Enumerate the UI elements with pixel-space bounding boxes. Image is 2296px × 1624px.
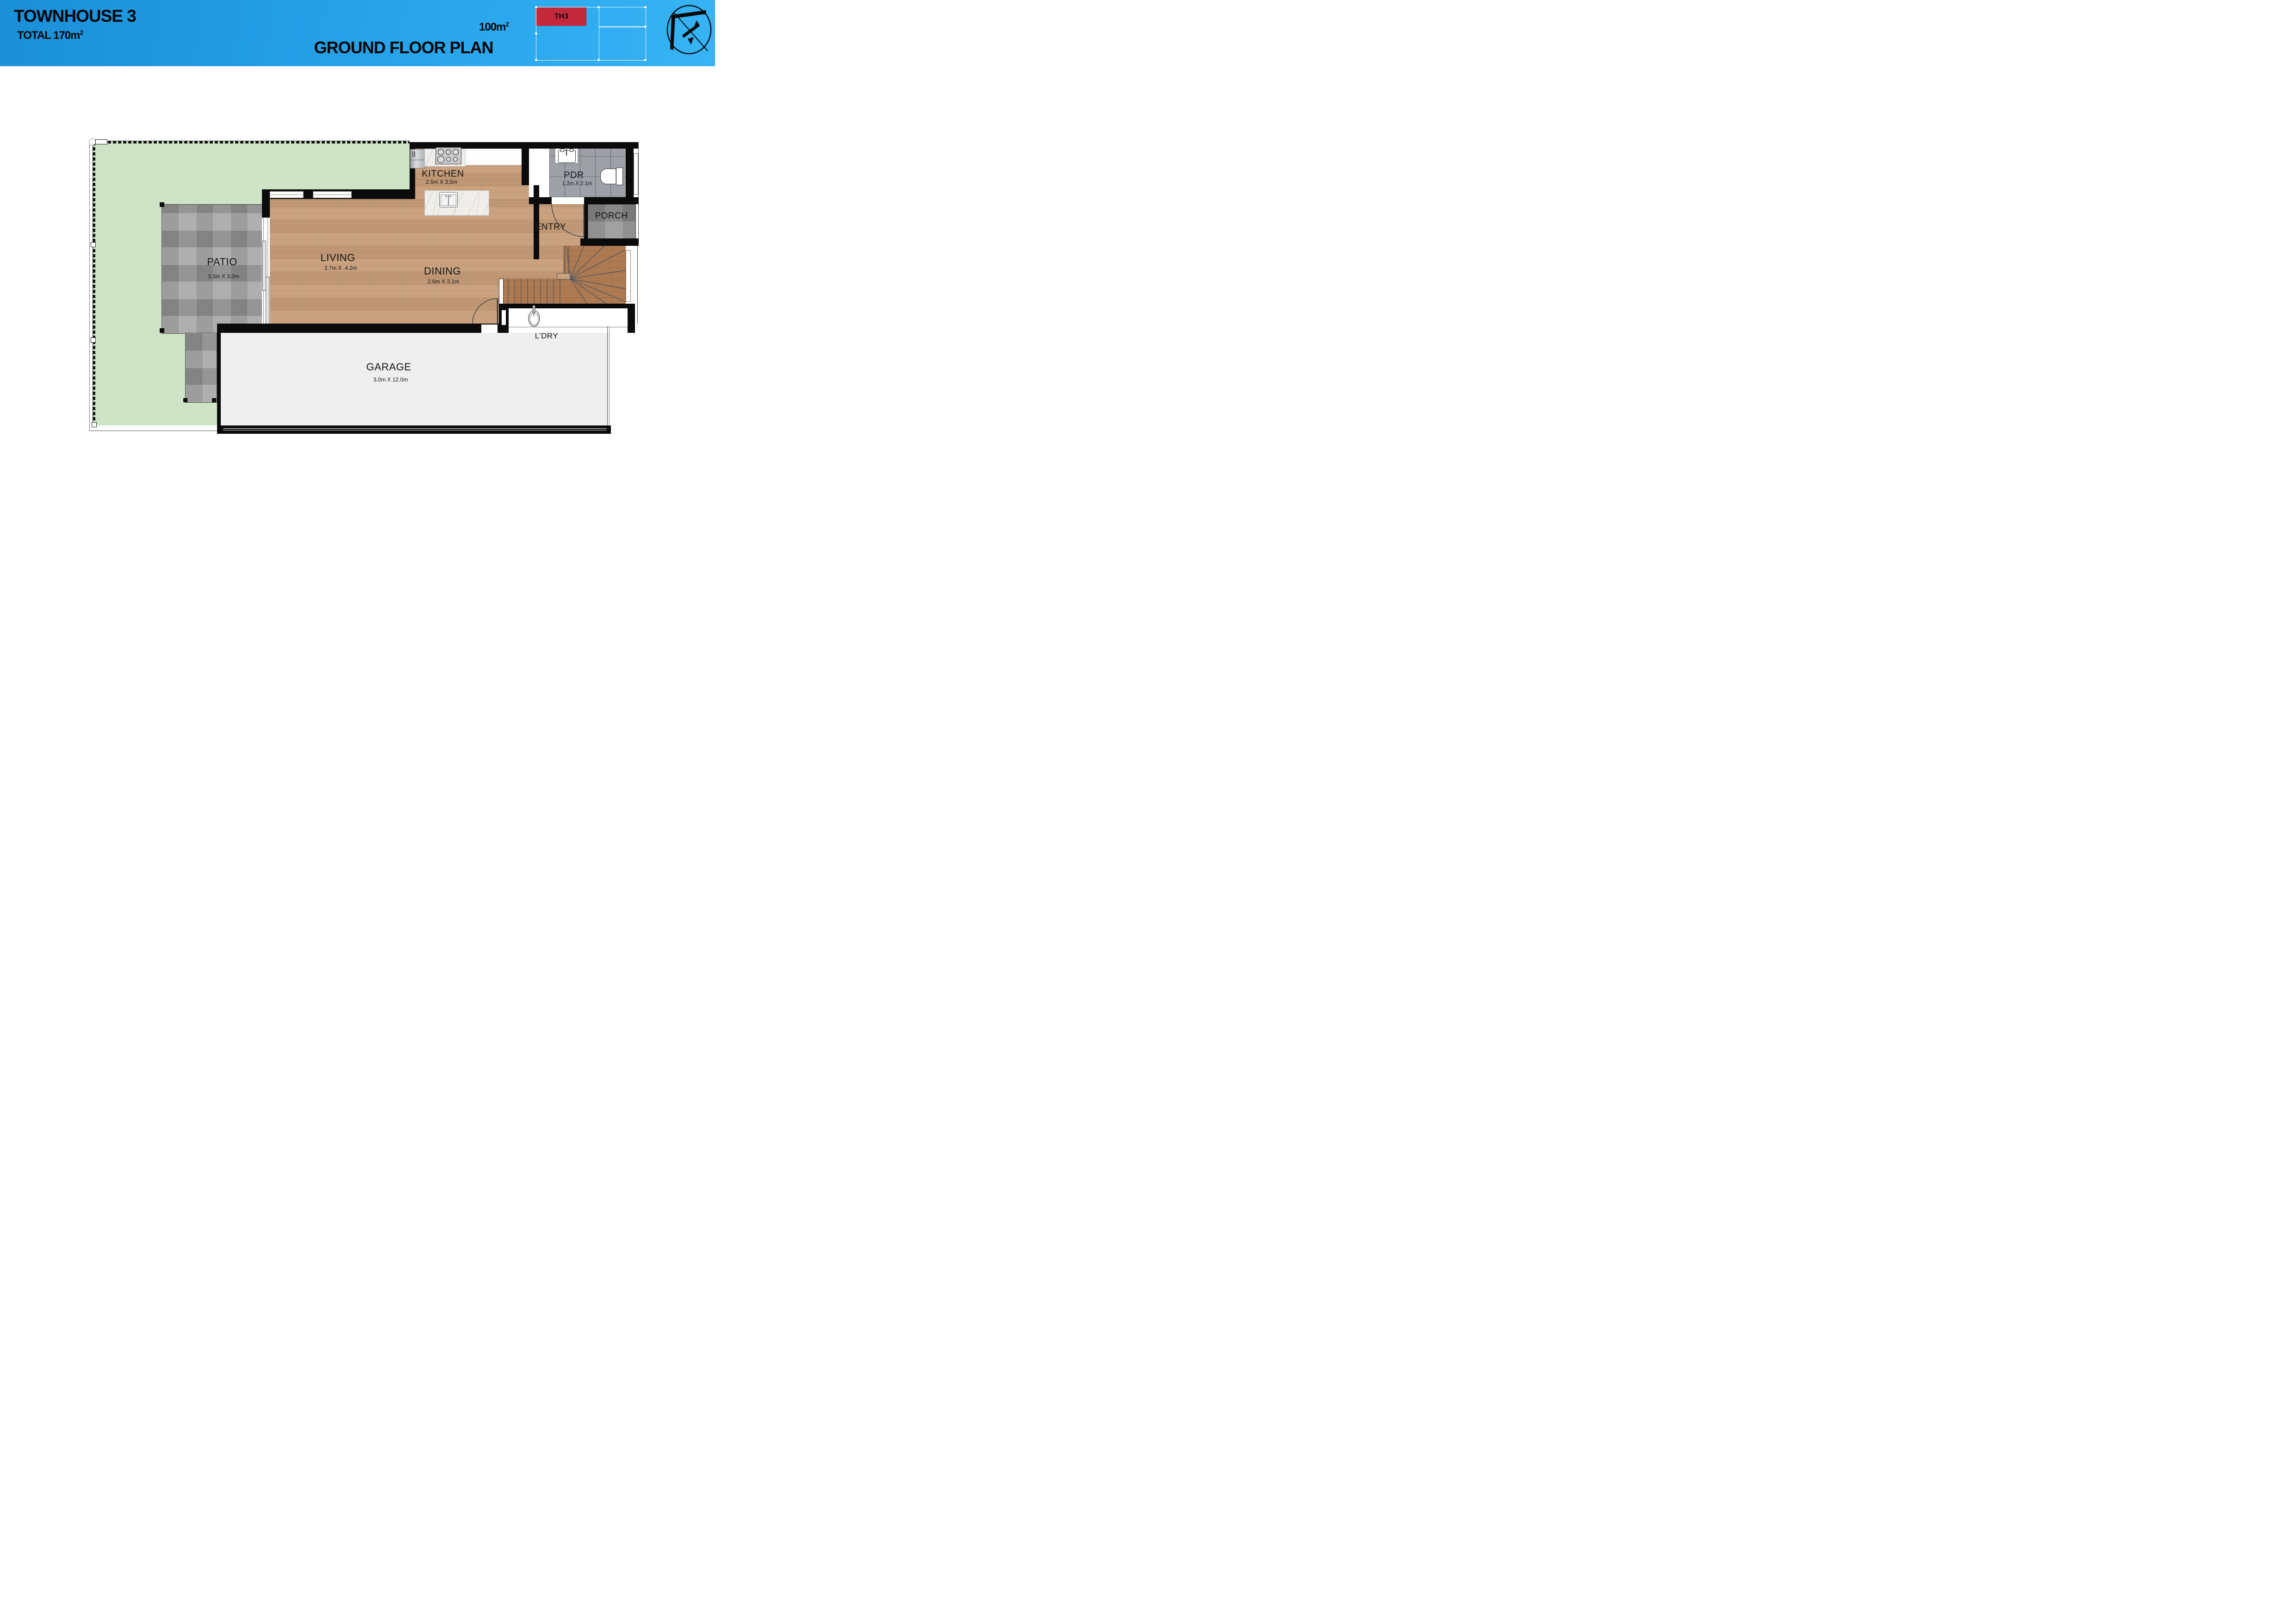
floor-area-sup: 2	[505, 20, 509, 28]
room-label-ldry: L’DRY	[535, 331, 558, 341]
island-bench	[424, 190, 489, 216]
porch-floor	[588, 204, 636, 239]
window-pdr-east	[634, 153, 638, 195]
garage-east-line	[609, 326, 610, 425]
grid-handle	[644, 25, 647, 28]
toilet-bowl	[600, 169, 617, 184]
room-label-entry: ENTRY	[535, 222, 566, 232]
total-area-label: TOTAL 170m2	[17, 29, 83, 42]
room-label-pdr: PDR	[564, 170, 584, 181]
boundary-line-left	[89, 142, 90, 431]
patio-post	[183, 398, 187, 402]
island-sink	[439, 192, 458, 207]
window-living-north	[269, 191, 304, 198]
site-grid-vline	[599, 7, 600, 60]
room-label-garage: GARAGE	[366, 361, 411, 373]
pdr-sink	[558, 150, 576, 163]
fence-top	[93, 141, 410, 144]
plan-title: GROUND FLOOR PLAN	[314, 38, 493, 57]
fence-post	[92, 422, 97, 427]
room-label-kitchen: KITCHEN	[422, 169, 464, 180]
front-door-opening	[552, 197, 584, 204]
grid-handle	[597, 6, 600, 8]
floor-area-label: 100m2	[479, 20, 509, 34]
patio-post	[160, 202, 164, 207]
wall-garage-north	[217, 324, 500, 333]
wall-pdr-east	[626, 149, 634, 197]
room-label-living: LIVING	[320, 252, 355, 264]
room-dims-kitchen: 2.5m X 3.5m	[426, 179, 457, 185]
kitchen-bench-white	[465, 149, 523, 165]
fence-post	[91, 242, 96, 247]
outer-line-east	[638, 142, 639, 246]
grid-handle	[535, 32, 537, 35]
page-title: TOWNHOUSE 3	[14, 6, 136, 26]
grid-handle	[644, 59, 647, 61]
site-grid-hline	[599, 26, 646, 27]
badge-th3-label: TH3	[554, 12, 568, 21]
wall-garage-south	[217, 425, 611, 434]
site-grid: TH3	[536, 7, 646, 61]
garage-door-line	[223, 428, 606, 429]
room-dims-pdr: 1.2m X 2.1m	[562, 181, 592, 187]
patio-walkway	[185, 333, 217, 403]
garage-floor	[220, 333, 609, 425]
grid-handle	[535, 59, 537, 61]
floor-area-text: 100m	[479, 21, 505, 33]
garage-door-opening	[481, 325, 498, 333]
grid-handle	[535, 6, 537, 8]
wall-garage-west	[217, 333, 221, 425]
toilet-cistern	[616, 168, 623, 185]
window-living-north	[313, 191, 352, 198]
wall-laundry-east	[628, 304, 635, 333]
boundary-line-bottom	[89, 431, 220, 431]
patio-post	[212, 398, 216, 402]
room-label-patio: PATIO	[207, 256, 237, 268]
floor-plan-page: TOWNHOUSE 3 TOTAL 170m2 100m2 GROUND FLO…	[0, 0, 715, 506]
north-arrow-logo-icon	[661, 2, 715, 57]
stairs-winder-upper	[563, 246, 626, 279]
stairs-landing	[557, 273, 571, 280]
hall-to-pdr	[529, 149, 549, 197]
wall-porch-west	[584, 197, 588, 238]
garage-east-line	[607, 326, 608, 425]
room-dims-dining: 2.6m X 3.1m	[428, 278, 459, 285]
stairs-lower-run	[502, 279, 626, 304]
laundry-door-pocket	[502, 310, 506, 325]
room-dims-living: 3.7m X .4.2m	[324, 265, 357, 271]
fence-post	[91, 337, 96, 343]
total-area-sup: 2	[80, 29, 83, 36]
room-label-dining: DINING	[424, 265, 461, 277]
grid-handle	[597, 59, 600, 61]
header-bar: TOWNHOUSE 3 TOTAL 170m2 100m2 GROUND FLO…	[0, 0, 715, 66]
room-dims-garage: 3.0m X 12.0m	[373, 376, 408, 383]
fridge	[410, 149, 425, 169]
room-label-porch: PORCH	[595, 211, 628, 221]
wall-porch-south	[580, 238, 639, 246]
patio-floor	[162, 204, 265, 334]
grid-handle	[644, 6, 647, 8]
wall-west-corner-top	[262, 189, 270, 218]
laundry-floor	[509, 308, 628, 327]
window-stairs-east	[626, 250, 631, 302]
wall-kitchen-pdr	[522, 149, 529, 185]
outer-line-stairs	[637, 246, 638, 324]
wall-stairs-laundry	[499, 304, 635, 308]
sliding-door-patio	[262, 218, 270, 324]
patio-post	[160, 328, 164, 333]
fence-left	[93, 142, 95, 425]
stairs-nosing	[499, 279, 504, 305]
fence-gate	[95, 139, 107, 144]
badge-th3: TH3	[536, 7, 586, 26]
room-dims-patio: 3.3m X 3.0m	[208, 273, 239, 280]
total-area-text: TOTAL 170m	[17, 29, 80, 42]
garage-door-line	[223, 430, 606, 431]
boundary-corner-marker	[89, 138, 96, 145]
cooktop	[436, 147, 461, 164]
